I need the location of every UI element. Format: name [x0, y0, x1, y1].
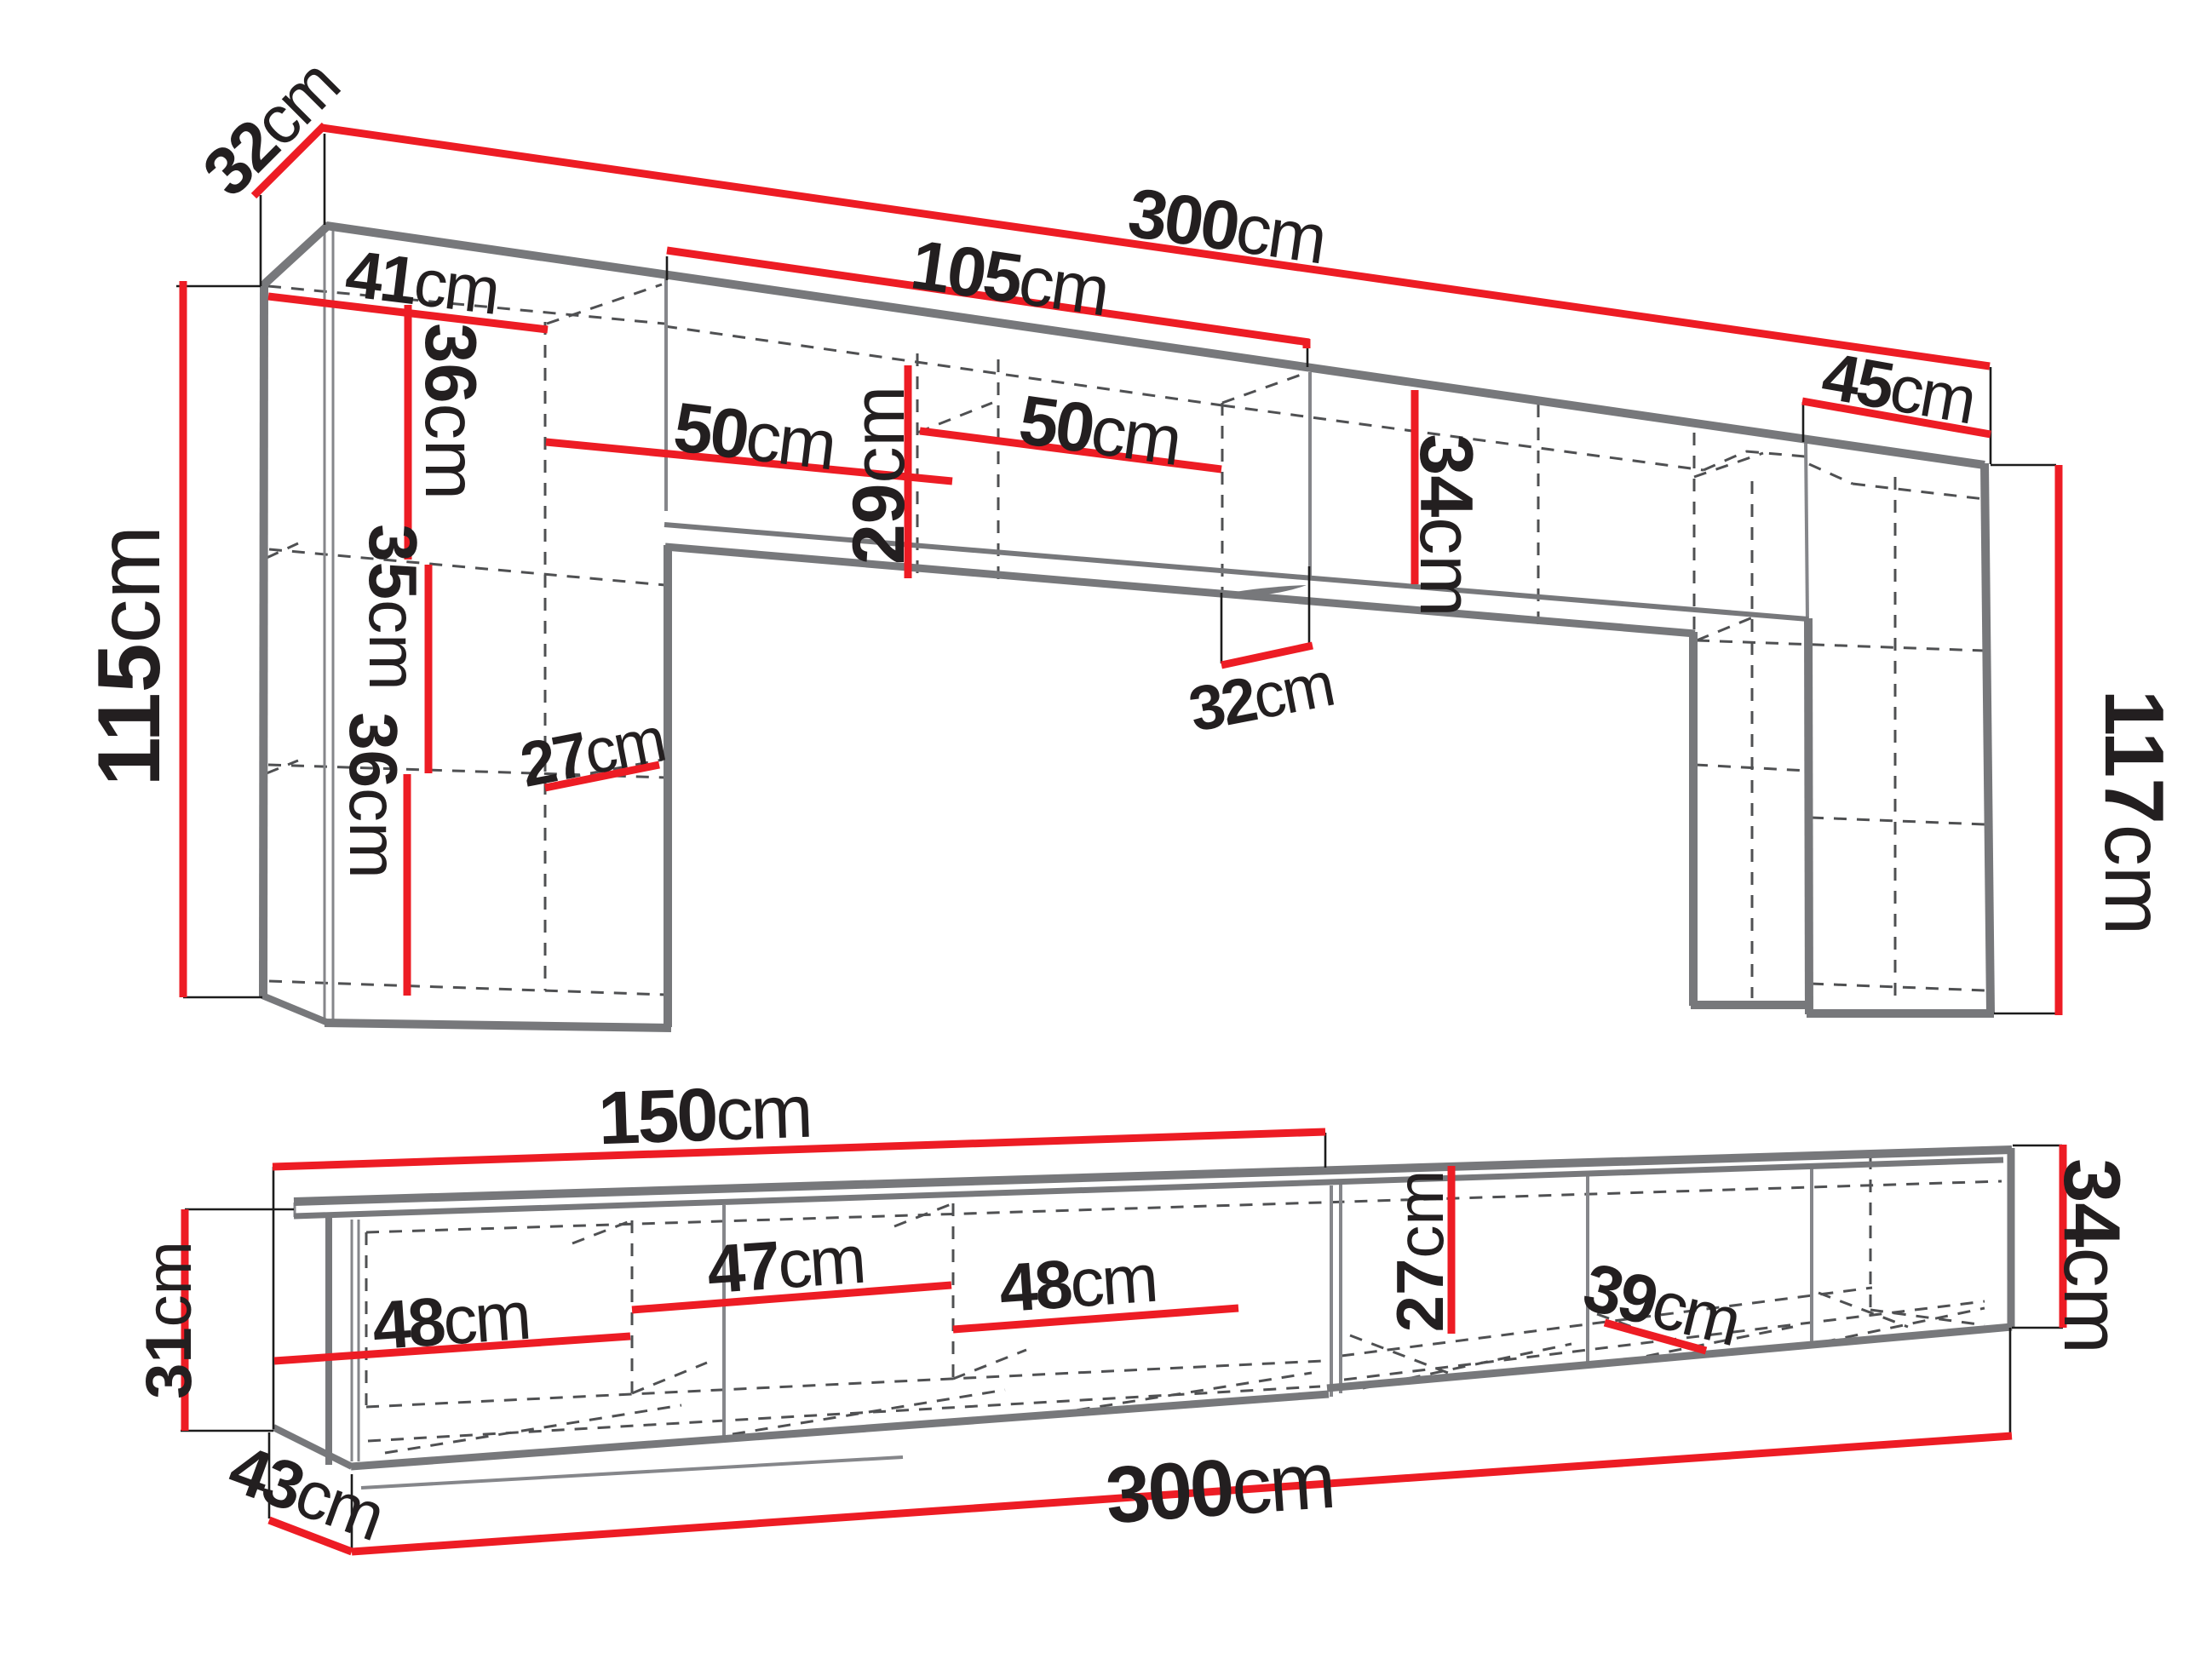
svg-text:27cm: 27cm — [1382, 1170, 1457, 1333]
svg-text:29cm: 29cm — [838, 386, 920, 565]
svg-text:35cm: 35cm — [355, 524, 431, 691]
svg-text:31cm: 31cm — [133, 1241, 205, 1399]
svg-text:150cm: 150cm — [597, 1069, 812, 1161]
svg-text:47cm: 47cm — [704, 1221, 865, 1308]
svg-text:34cm: 34cm — [1405, 433, 1489, 617]
svg-text:34cm: 34cm — [2048, 1158, 2137, 1354]
svg-text:48cm: 48cm — [370, 1277, 531, 1364]
svg-text:300cm: 300cm — [1103, 1435, 1336, 1540]
svg-text:36cm: 36cm — [336, 712, 411, 879]
svg-text:36cm: 36cm — [410, 323, 491, 500]
svg-text:48cm: 48cm — [997, 1240, 1158, 1327]
svg-text:117cm: 117cm — [2088, 690, 2181, 936]
svg-text:115cm: 115cm — [80, 525, 179, 786]
